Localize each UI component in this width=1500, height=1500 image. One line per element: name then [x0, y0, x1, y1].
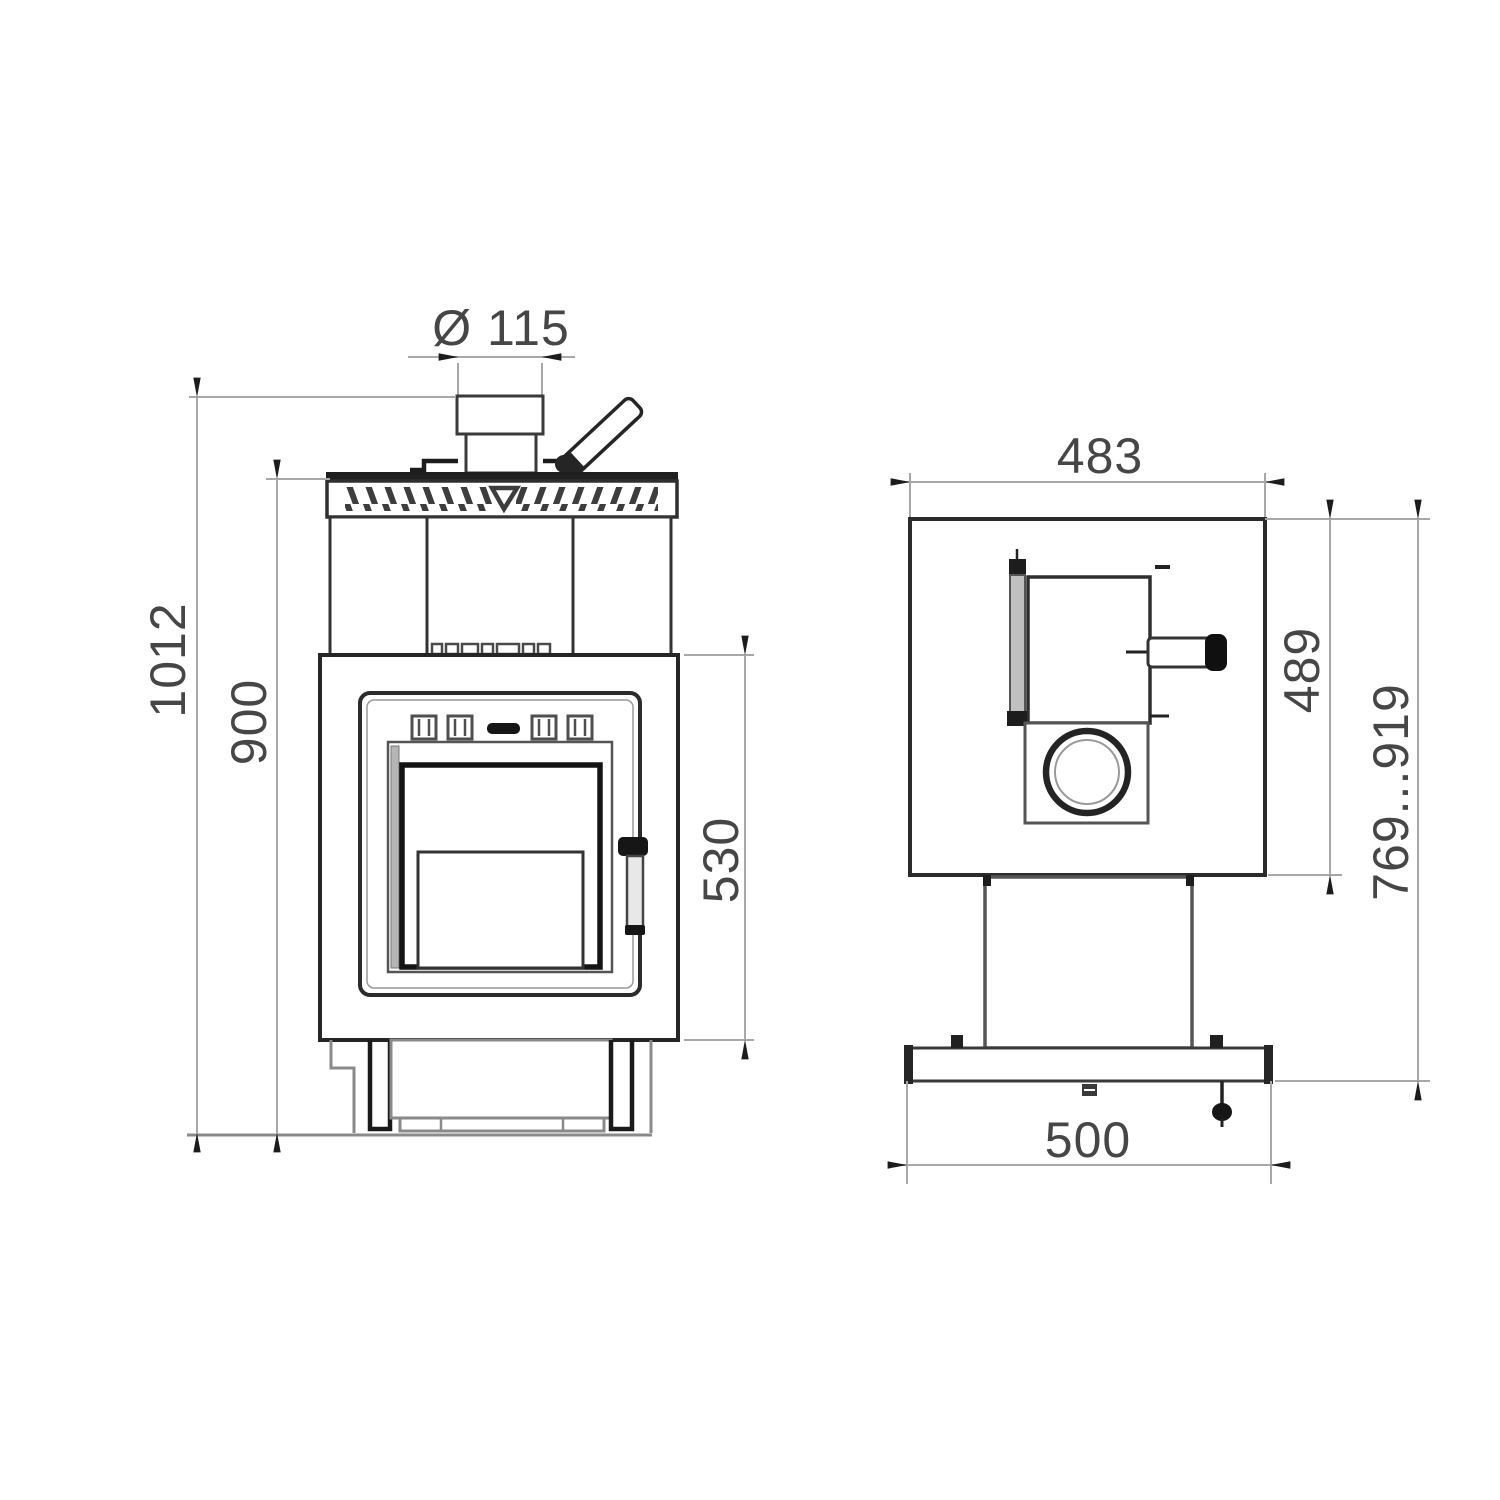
pipe-bracket-left	[410, 461, 458, 470]
base-width-label: 500	[1045, 1112, 1131, 1168]
plinth-recess	[391, 1040, 611, 1118]
grille-slats-left	[345, 487, 493, 511]
pedestal	[983, 875, 1194, 1048]
flue-collar	[457, 396, 543, 434]
base-plate-body	[907, 1048, 1271, 1081]
chimney-pipe	[410, 396, 572, 473]
handle-knob	[618, 837, 648, 856]
dim-top-width: 483	[900, 428, 1278, 518]
damper-handle	[555, 396, 644, 478]
door-glass	[388, 742, 612, 972]
handle-rod-cap	[1205, 634, 1227, 671]
front-view: Ø 115	[140, 300, 754, 1135]
flue-connection	[1025, 723, 1148, 823]
body-height-label: 900	[221, 679, 277, 765]
right-leg	[611, 1040, 632, 1129]
stove-door	[360, 693, 648, 995]
pedestal-corner-mark	[1186, 875, 1194, 886]
pedestal-column	[985, 877, 1192, 1048]
top-width-label: 483	[1057, 428, 1143, 484]
handle-bar-cap	[625, 925, 645, 935]
left-leg-step	[331, 1040, 354, 1133]
door-section-height-label: 530	[693, 817, 749, 903]
lower-vent-row	[432, 644, 550, 654]
grille-slats-right	[516, 487, 658, 511]
dim-flue-diameter: Ø 115	[408, 300, 575, 395]
dim-adjustable-height: 769...919	[1275, 519, 1430, 1081]
side-view: 483	[900, 428, 1430, 1184]
dim-door-section-height: 530	[684, 655, 754, 1040]
hinge-bar	[1010, 575, 1025, 715]
firebox-back-panel	[418, 852, 583, 968]
overall-height-label: 1012	[140, 602, 196, 717]
handle-bar	[627, 856, 643, 928]
left-leg	[370, 1040, 390, 1129]
plate-end-cap	[1264, 1045, 1273, 1084]
adjustable-height-label: 769...919	[1363, 683, 1419, 901]
upper-casing	[330, 517, 671, 655]
plate-bolt	[951, 1035, 963, 1048]
flue-pipe	[466, 434, 536, 473]
damper-pivot	[555, 455, 573, 473]
glass-side-shade	[391, 746, 399, 968]
side-door-panel	[1028, 577, 1150, 723]
hinge-cap-top	[1009, 559, 1026, 575]
side-body-height-label: 489	[1274, 627, 1330, 713]
handle-rod	[1148, 638, 1210, 667]
base-front	[187, 1040, 652, 1135]
flue-diameter-label: Ø 115	[432, 300, 570, 356]
side-door	[1007, 549, 1170, 726]
top-vent-grille	[326, 472, 678, 517]
plinth-lip	[400, 1118, 604, 1131]
upper-section	[330, 517, 671, 655]
flue-outlet-circle	[1046, 731, 1128, 813]
pedestal-corner-mark	[983, 875, 991, 886]
plate-bolt	[1210, 1035, 1223, 1048]
stove-technical-drawing: Ø 115	[0, 0, 1500, 1500]
plate-end-cap	[904, 1045, 913, 1084]
leveling-foot	[1212, 1103, 1232, 1121]
vent-slot	[487, 723, 520, 734]
dim-body-height: 900	[221, 479, 330, 1133]
